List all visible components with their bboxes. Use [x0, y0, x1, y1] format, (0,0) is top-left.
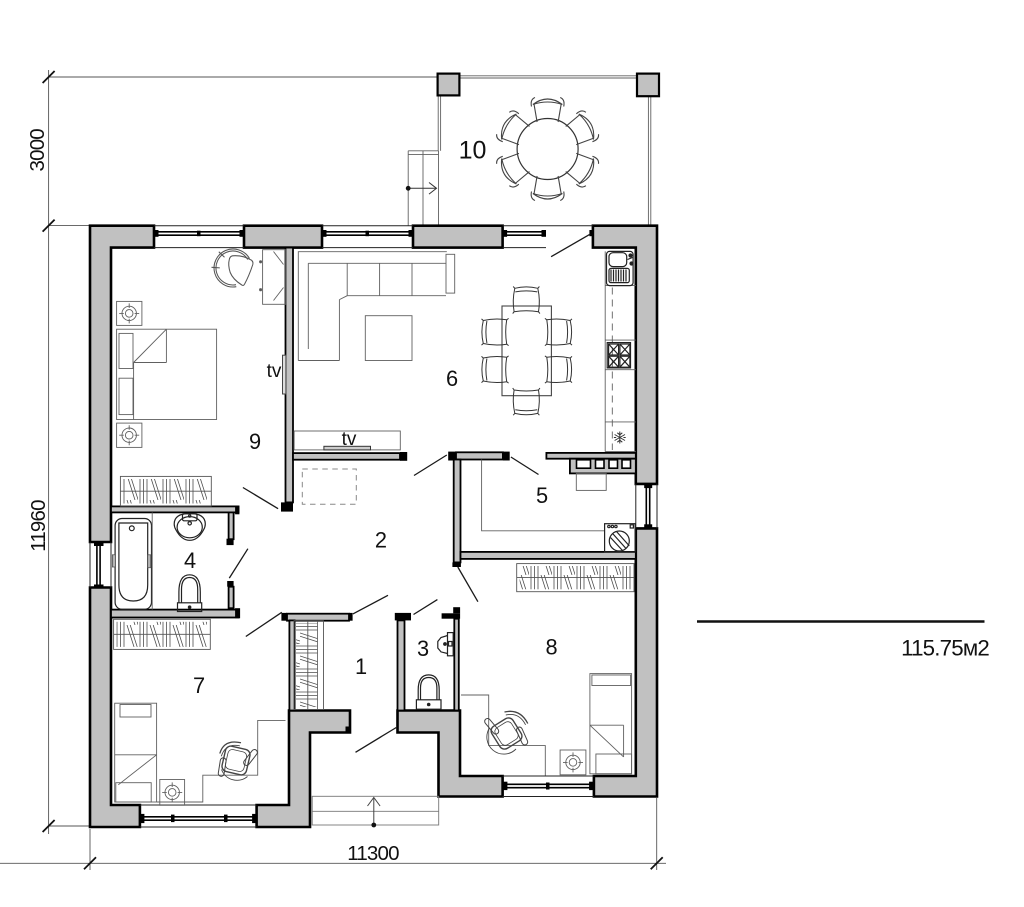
svg-text:9: 9: [249, 429, 261, 454]
svg-text:1: 1: [355, 654, 367, 679]
svg-text:7: 7: [193, 673, 205, 698]
svg-text:4: 4: [184, 548, 196, 573]
svg-text:tv: tv: [342, 429, 357, 450]
svg-text:8: 8: [546, 634, 558, 659]
svg-text:10: 10: [459, 137, 487, 165]
svg-text:6: 6: [446, 366, 458, 391]
svg-text:tv: tv: [267, 361, 282, 382]
svg-text:5: 5: [536, 483, 548, 508]
svg-text:3: 3: [417, 636, 429, 661]
svg-text:11300: 11300: [347, 842, 399, 865]
svg-text:115.75м2: 115.75м2: [901, 636, 989, 661]
svg-text:3000: 3000: [26, 129, 49, 172]
svg-text:11960: 11960: [27, 500, 50, 552]
svg-text:2: 2: [375, 527, 387, 552]
